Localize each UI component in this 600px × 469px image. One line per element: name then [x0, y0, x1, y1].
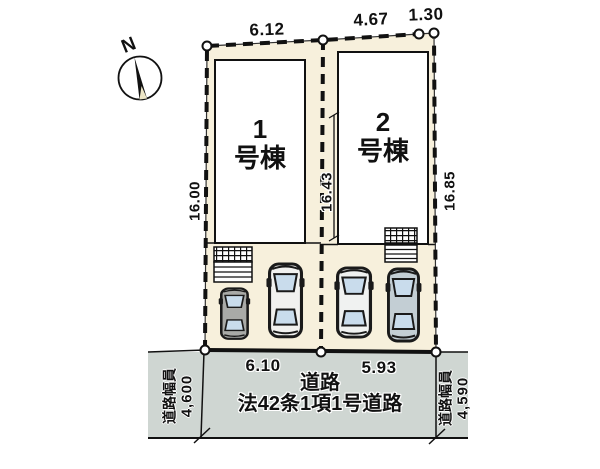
car-top-icon	[334, 268, 373, 337]
dimension-side-mid: 16.43	[319, 172, 336, 212]
car-top-icon	[219, 288, 250, 338]
dimension-top-mid: 4.67	[353, 9, 389, 31]
dimension-top-right: 1.30	[408, 4, 444, 25]
building-1-entrance-porch	[214, 247, 252, 282]
building-2-label: 2 号棟	[338, 108, 428, 165]
dimension-side-left: 16.00	[187, 181, 204, 221]
building-2-entrance-porch	[385, 228, 417, 262]
car-top-icon	[386, 269, 422, 341]
compass-north-icon	[119, 57, 162, 100]
road-width-left-value: 4,600	[178, 368, 196, 424]
building-2-suffix: 号棟	[338, 137, 428, 166]
road-width-right-caption: 道路幅員	[438, 370, 455, 426]
road-width-left-caption: 道路幅員	[162, 368, 179, 424]
road-width-right-value: 4,590	[454, 370, 472, 426]
building-1-number: 1	[215, 115, 305, 144]
building-2-number: 2	[338, 108, 428, 137]
road-title: 道路	[155, 373, 485, 394]
road-name: 道路 法42条1項1号道路	[155, 373, 485, 415]
building-1-label: 1 号棟	[215, 115, 305, 172]
dimension-top-left: 6.12	[249, 19, 285, 40]
site-plan: N 6.12 4.67 1.30 16.00 16.43 16.85 6.10 …	[0, 0, 600, 469]
road-width-label-right: 道路幅員 4,590	[438, 370, 473, 426]
dimension-side-right: 16.85	[442, 171, 459, 211]
car-top-icon	[266, 264, 304, 337]
road-legal-designation: 法42条1項1号道路	[155, 394, 485, 415]
road-width-label-left: 道路幅員 4,600	[162, 368, 197, 424]
building-1-suffix: 号棟	[215, 144, 305, 173]
